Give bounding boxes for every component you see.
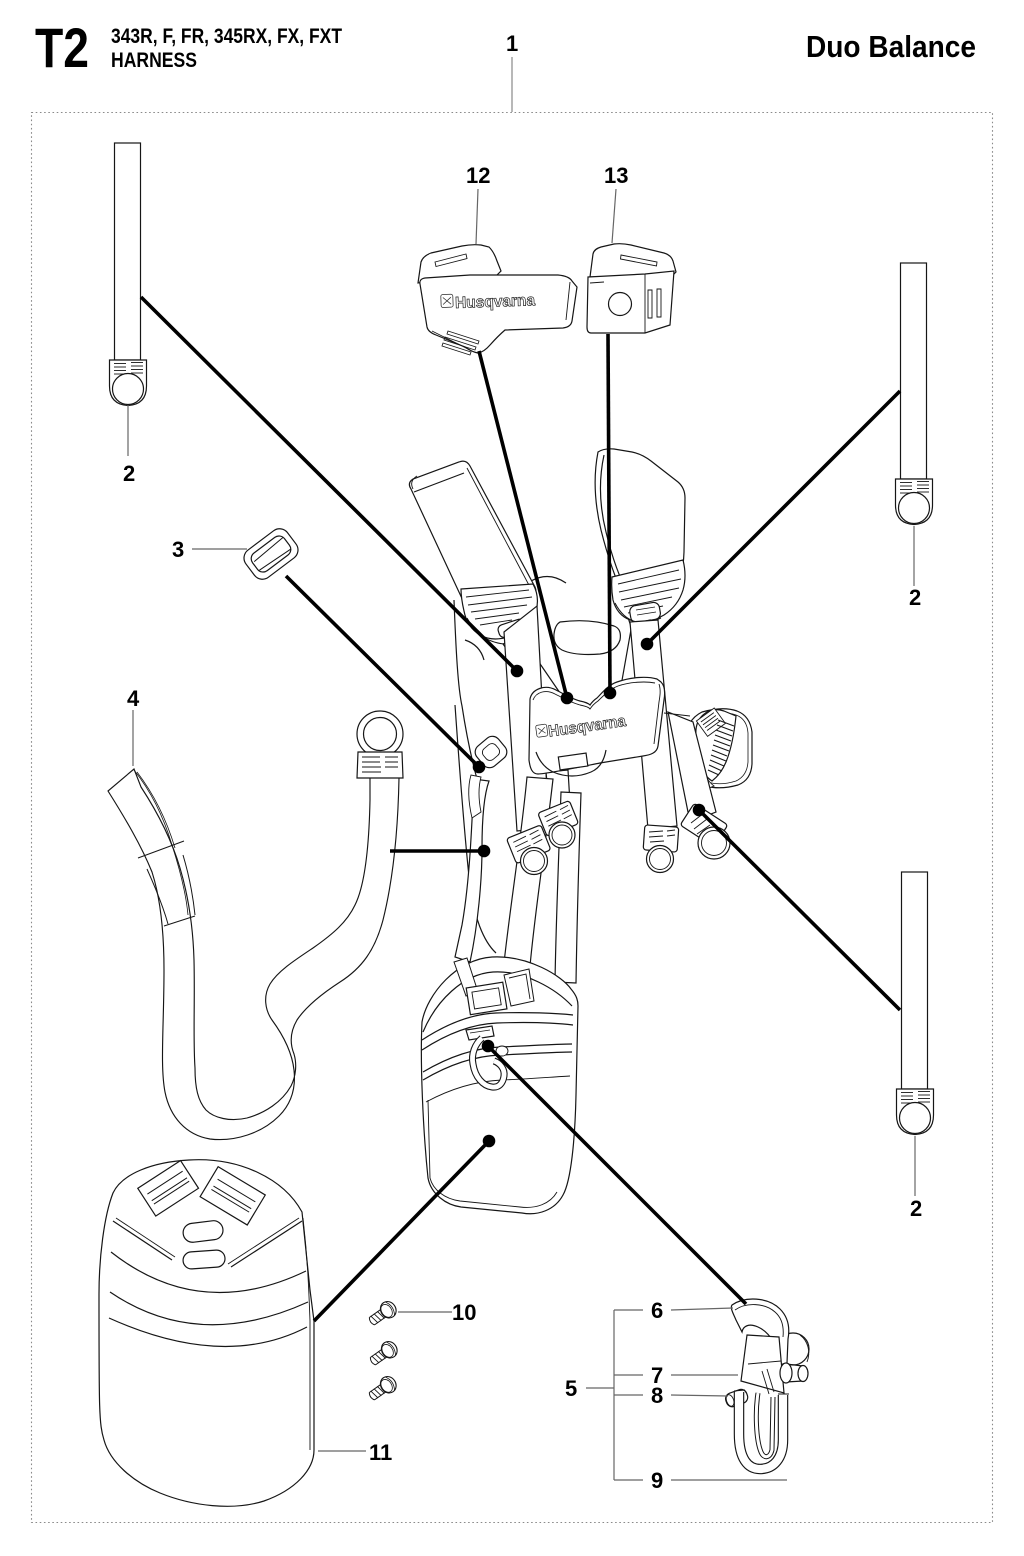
svg-text:2: 2 [123, 461, 135, 486]
svg-text:Husqvarna: Husqvarna [455, 292, 536, 312]
svg-text:2: 2 [909, 585, 921, 610]
svg-text:10: 10 [452, 1300, 476, 1325]
svg-text:3: 3 [172, 537, 184, 562]
svg-text:13: 13 [604, 163, 628, 188]
svg-text:12: 12 [466, 163, 490, 188]
svg-text:T2: T2 [35, 16, 89, 79]
svg-text:9: 9 [651, 1468, 663, 1493]
svg-text:11: 11 [369, 1440, 392, 1465]
svg-text:2: 2 [910, 1196, 922, 1221]
svg-text:1: 1 [506, 31, 518, 56]
svg-text:4: 4 [127, 686, 140, 711]
svg-text:8: 8 [651, 1383, 663, 1408]
svg-text:6: 6 [651, 1298, 663, 1323]
svg-text:HARNESS: HARNESS [111, 49, 197, 72]
svg-text:5: 5 [565, 1376, 577, 1401]
svg-text:343R, F, FR, 345RX, FX, FXT: 343R, F, FR, 345RX, FX, FXT [111, 25, 342, 48]
svg-text:Duo Balance: Duo Balance [806, 29, 976, 64]
